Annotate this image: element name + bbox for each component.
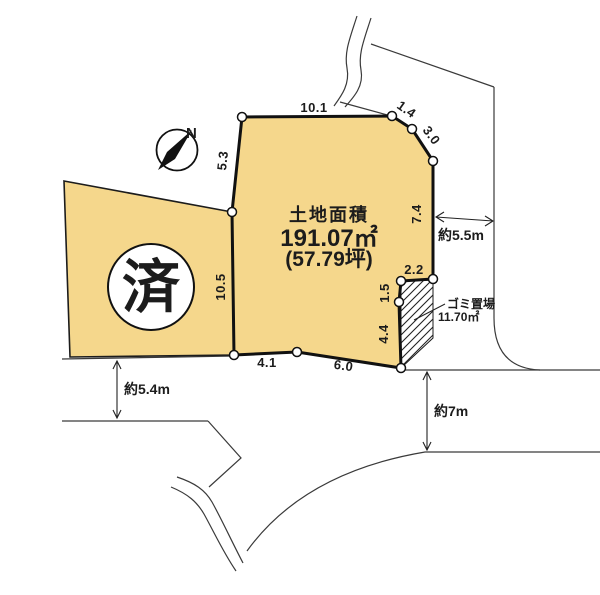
boundary-vertex [238, 113, 247, 122]
area-title: 土地面積 [289, 204, 369, 225]
bottom-break-wavy-left [177, 477, 243, 563]
boundary-vertex [388, 112, 397, 121]
boundary-vertex [293, 348, 302, 357]
garbage-area-label: ゴミ置場 11.70㎡ [438, 296, 495, 324]
garbage-area-name: ゴミ置場 [447, 296, 495, 311]
west-road-width-label: 約5.4m [124, 381, 170, 397]
dim-notch-bottom: 4.4 [376, 324, 391, 344]
northeast-road-top-edge [371, 44, 494, 87]
dim-top-right-a: 1.4 [394, 98, 419, 122]
area-tsubo: (57.79坪) [285, 248, 373, 271]
boundary-vertex [397, 364, 406, 373]
garbage-area-hatch [401, 280, 433, 368]
east-road-edge [494, 87, 540, 370]
dim-notch-mid: 1.5 [377, 283, 392, 303]
boundary-vertex [397, 277, 406, 286]
compass-icon: N [157, 125, 198, 171]
boundary-vertex [408, 125, 417, 134]
sold-badge-label: 済 [122, 255, 181, 320]
south-road-width-arrow [423, 372, 431, 450]
top-break-wavy-left [334, 16, 357, 106]
boundary-vertex [228, 208, 237, 217]
top-break-wavy-right [345, 18, 371, 107]
dim-bottom-right: 6.0 [333, 357, 354, 375]
dim-top: 10.1 [300, 100, 327, 115]
dim-notch-top: 2.2 [404, 262, 424, 277]
east-road-width-arrow [436, 212, 493, 226]
west-road-width-arrow [113, 361, 121, 418]
south-road-curve-edge [247, 452, 600, 551]
dim-bottom-left: 4.1 [257, 355, 277, 370]
dim-left-lower: 10.5 [213, 273, 228, 300]
dim-left-upper: 5.3 [214, 150, 231, 171]
boundary-vertex [230, 351, 239, 360]
sold-status-badge: 済 [108, 244, 194, 330]
land-plot-diagram: N 土地面積 191.07㎡ (57.79坪) 10.1 1.4 3.0 7.4… [0, 0, 600, 595]
garbage-area-size: 11.70㎡ [438, 309, 479, 324]
boundary-vertex [429, 157, 438, 166]
boundary-vertex [429, 275, 438, 284]
boundary-vertex [395, 298, 404, 307]
dim-right: 7.4 [409, 204, 424, 224]
east-road-width-label: 約5.5m [438, 227, 484, 243]
road-connector-to-parcel [340, 102, 391, 116]
south-road-width-label: 約7m [434, 403, 468, 419]
parcel-area-text: 土地面積 191.07㎡ (57.79坪) [280, 204, 377, 271]
compass-north-label: N [186, 125, 197, 142]
road-corner-chevron [208, 421, 241, 487]
